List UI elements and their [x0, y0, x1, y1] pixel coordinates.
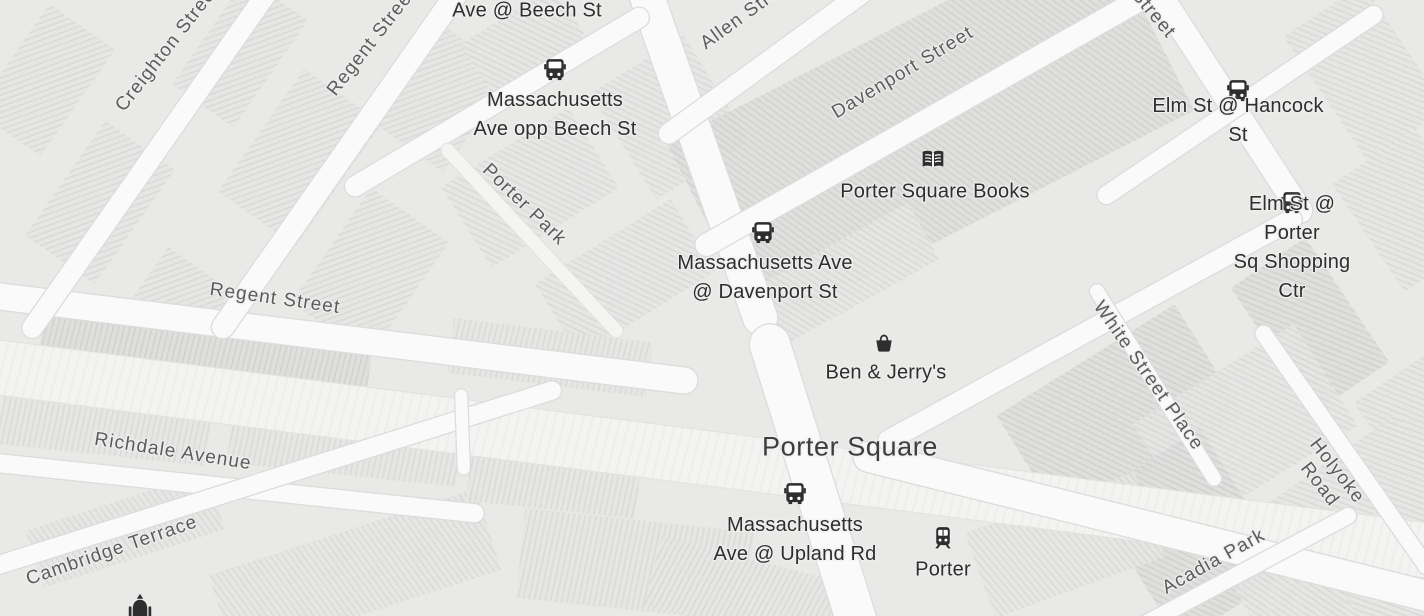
bus-stop-label-ave-at-beech-st[interactable]: Ave @ Beech St [452, 0, 601, 26]
train-station-icon[interactable] [931, 526, 956, 551]
place-label-porter-square-books[interactable]: Porter Square Books [840, 181, 1029, 204]
bus-icon[interactable] [750, 220, 776, 246]
station-label-porter[interactable]: Porter [915, 556, 971, 585]
book-store-icon[interactable] [920, 147, 947, 174]
shopping-basket-icon[interactable] [872, 331, 897, 356]
bus-stop-label-mass-ave-at-davenport-st[interactable]: Massachusetts Ave @ Davenport St [677, 249, 852, 307]
place-of-worship-icon[interactable] [125, 592, 155, 616]
bus-stop-label-elm-st-at-hancock-st[interactable]: Elm St @ Hancock St [1145, 92, 1331, 150]
map-canvas[interactable]: Creighton Street Regent Street Allen Str… [0, 0, 1424, 616]
bus-icon[interactable] [542, 57, 568, 83]
bus-stop-label-mass-ave-opp-beech-st[interactable]: Massachusetts Ave opp Beech St [474, 86, 637, 144]
bus-icon[interactable] [782, 481, 808, 507]
area-label-porter-square: Porter Square [762, 432, 938, 463]
bus-stop-label-mass-ave-at-upland-rd[interactable]: Massachusetts Ave @ Upland Rd [713, 511, 876, 569]
bus-stop-label-elm-st-at-porter-sq-shopping-ctr[interactable]: Elm St @ Porter Sq Shopping Ctr [1226, 190, 1358, 306]
place-label-ben-and-jerrys[interactable]: Ben & Jerry's [826, 362, 947, 385]
road-upland-stub [455, 389, 470, 474]
